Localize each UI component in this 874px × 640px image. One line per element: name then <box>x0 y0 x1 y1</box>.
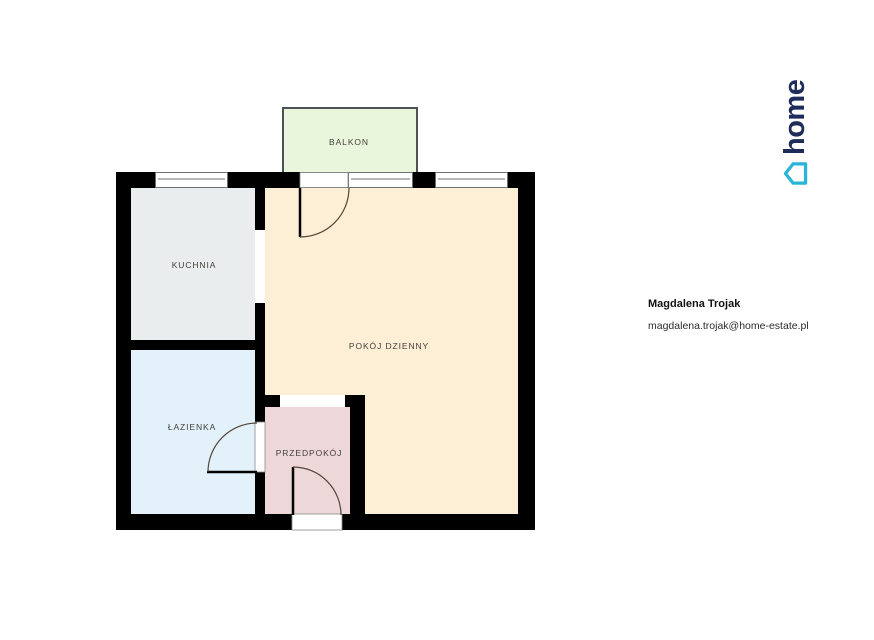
label-balkon: BALKON <box>329 137 369 147</box>
label-pokoj-dzienny: POKÓJ DZIENNY <box>349 341 429 351</box>
label-lazienka: ŁAZIENKA <box>168 422 216 432</box>
window-kitchen <box>156 173 228 188</box>
opening-hallway <box>280 395 345 407</box>
label-przedpokoj: PRZEDPOKÓJ <box>276 448 343 458</box>
brand-logo: home <box>773 75 817 185</box>
house-icon <box>783 162 808 185</box>
agent-info: Magdalena Trojak magdalena.trojak@home-e… <box>648 299 809 332</box>
agent-email: magdalena.trojak@home-estate.pl <box>648 321 809 332</box>
window-living <box>349 173 413 188</box>
logo-text: home <box>781 80 810 155</box>
label-kuchnia: KUCHNIA <box>172 260 217 270</box>
room-lazienka <box>131 350 255 514</box>
balcony-door-opening <box>300 173 348 188</box>
room-przedpokoj <box>265 407 350 514</box>
window-living-right <box>436 173 508 188</box>
agent-name: Magdalena Trojak <box>648 299 809 310</box>
